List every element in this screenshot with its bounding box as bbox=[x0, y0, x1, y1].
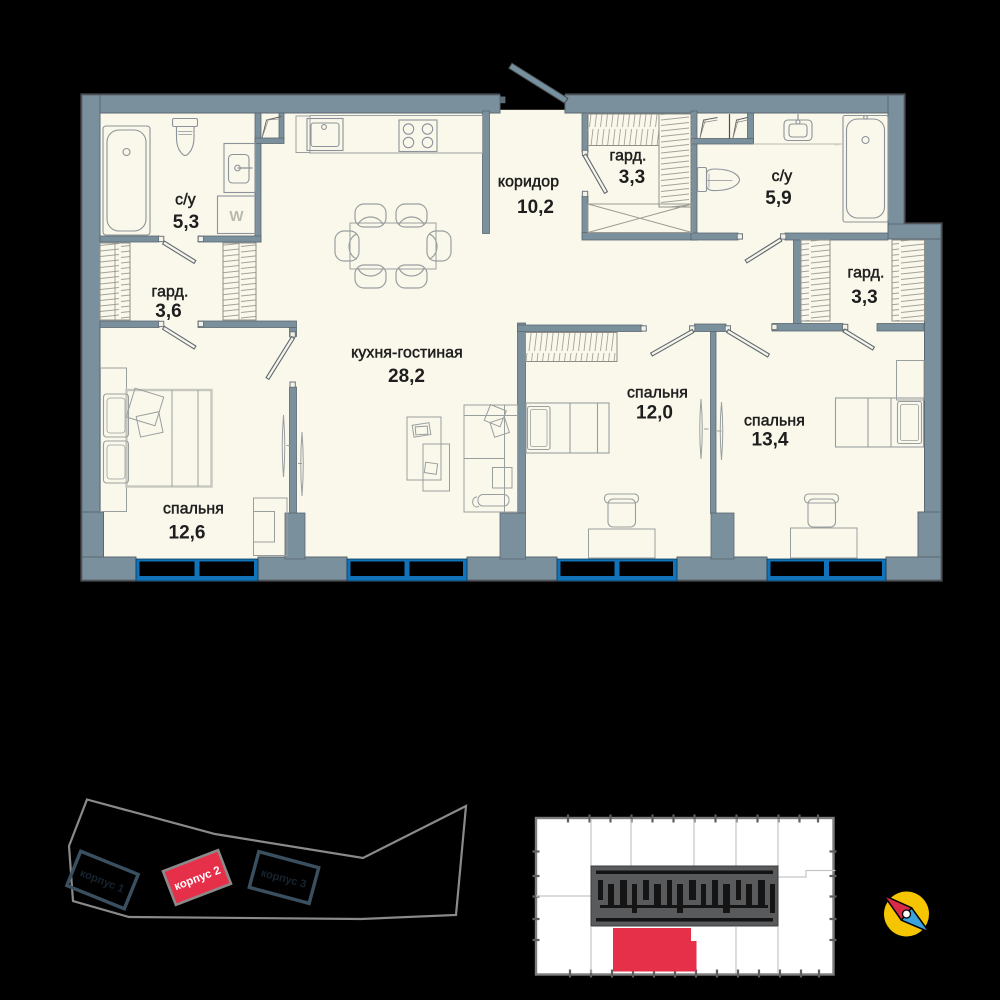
svg-text:коридор: коридор bbox=[498, 174, 559, 191]
svg-text:12,6: 12,6 bbox=[169, 523, 206, 544]
svg-text:28,2: 28,2 bbox=[388, 366, 425, 387]
svg-text:спальня: спальня bbox=[744, 413, 805, 430]
svg-text:W: W bbox=[229, 208, 244, 225]
svg-text:спальня: спальня bbox=[627, 385, 688, 402]
svg-text:5,9: 5,9 bbox=[765, 188, 791, 209]
svg-text:кухня-гостиная: кухня-гостиная bbox=[351, 345, 463, 362]
svg-text:спальня: спальня bbox=[163, 501, 224, 518]
svg-text:12,0: 12,0 bbox=[636, 403, 673, 424]
svg-text:гард.: гард. bbox=[848, 265, 885, 282]
svg-text:с/у: с/у bbox=[175, 192, 196, 209]
svg-text:с/у: с/у bbox=[772, 168, 793, 185]
svg-text:3,6: 3,6 bbox=[155, 301, 181, 322]
svg-text:гард.: гард. bbox=[152, 284, 189, 301]
svg-text:5,3: 5,3 bbox=[173, 212, 199, 233]
svg-text:13,4: 13,4 bbox=[752, 430, 789, 451]
svg-text:10,2: 10,2 bbox=[517, 197, 554, 218]
svg-text:3,3: 3,3 bbox=[619, 167, 645, 188]
svg-text:3,3: 3,3 bbox=[851, 287, 877, 308]
svg-text:гард.: гард. bbox=[610, 148, 647, 165]
